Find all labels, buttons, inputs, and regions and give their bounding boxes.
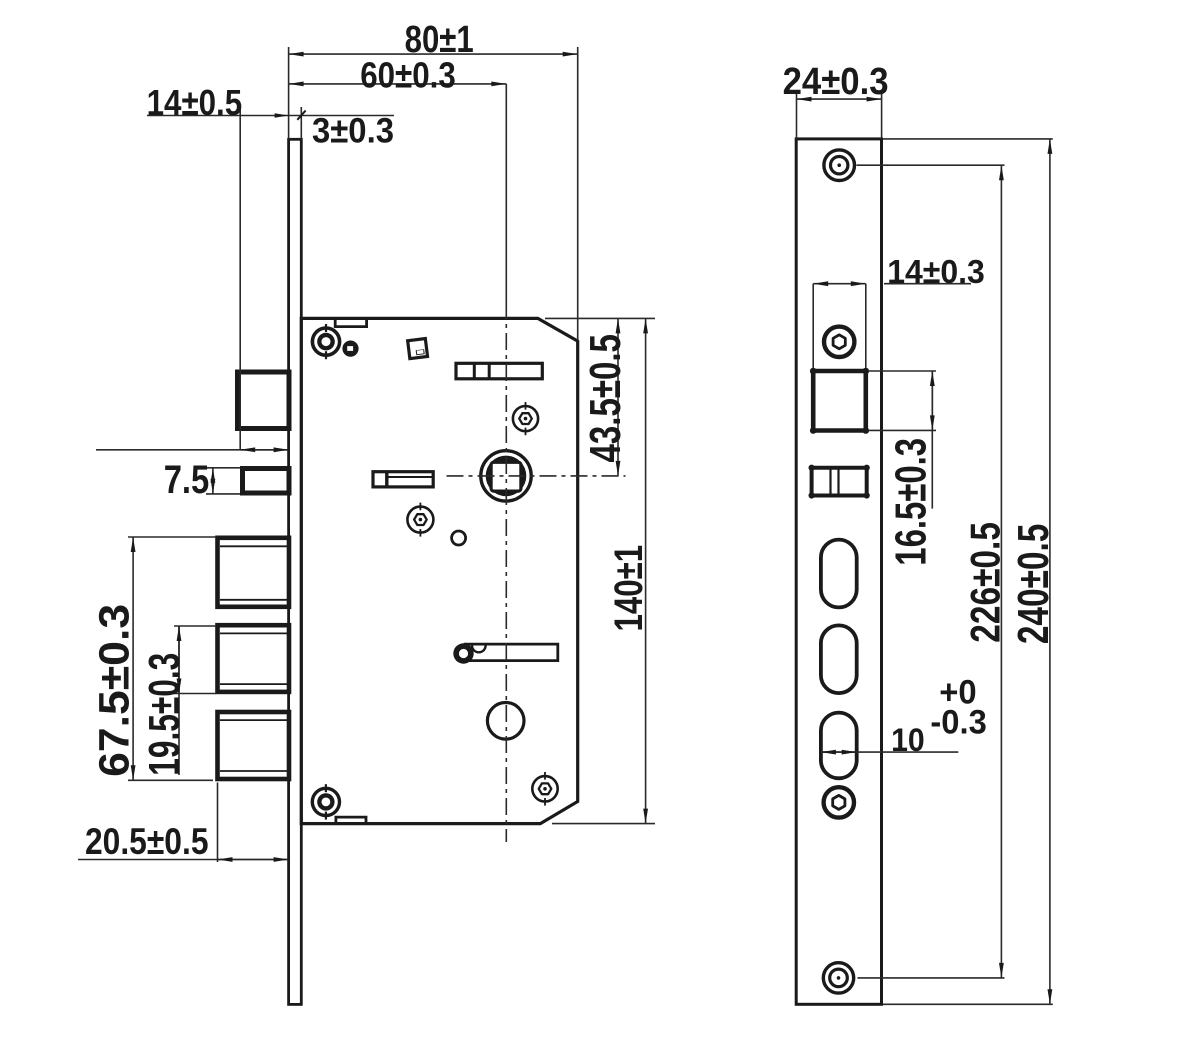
svg-text:24±0.3: 24±0.3 <box>783 61 889 103</box>
svg-text:67.5±0.3: 67.5±0.3 <box>90 604 138 777</box>
svg-text:7.5: 7.5 <box>164 458 210 502</box>
svg-text:14±0.5: 14±0.5 <box>147 82 243 123</box>
svg-text:-0.3: -0.3 <box>930 704 986 742</box>
svg-text:240±0.5: 240±0.5 <box>1009 524 1058 645</box>
svg-text:20.5±0.5: 20.5±0.5 <box>85 821 209 862</box>
svg-text:3±0.3: 3±0.3 <box>312 112 394 151</box>
svg-text:60±0.3: 60±0.3 <box>360 55 456 96</box>
svg-text:226±0.5: 226±0.5 <box>961 522 1008 643</box>
svg-text:43.5±0.5: 43.5±0.5 <box>581 334 630 462</box>
svg-text:16.5±0.3: 16.5±0.3 <box>887 438 936 566</box>
svg-text:10: 10 <box>891 722 925 758</box>
svg-text:19.5±0.3: 19.5±0.3 <box>140 653 189 776</box>
svg-text:140±1: 140±1 <box>607 545 651 632</box>
svg-text:14±0.3: 14±0.3 <box>887 253 985 290</box>
